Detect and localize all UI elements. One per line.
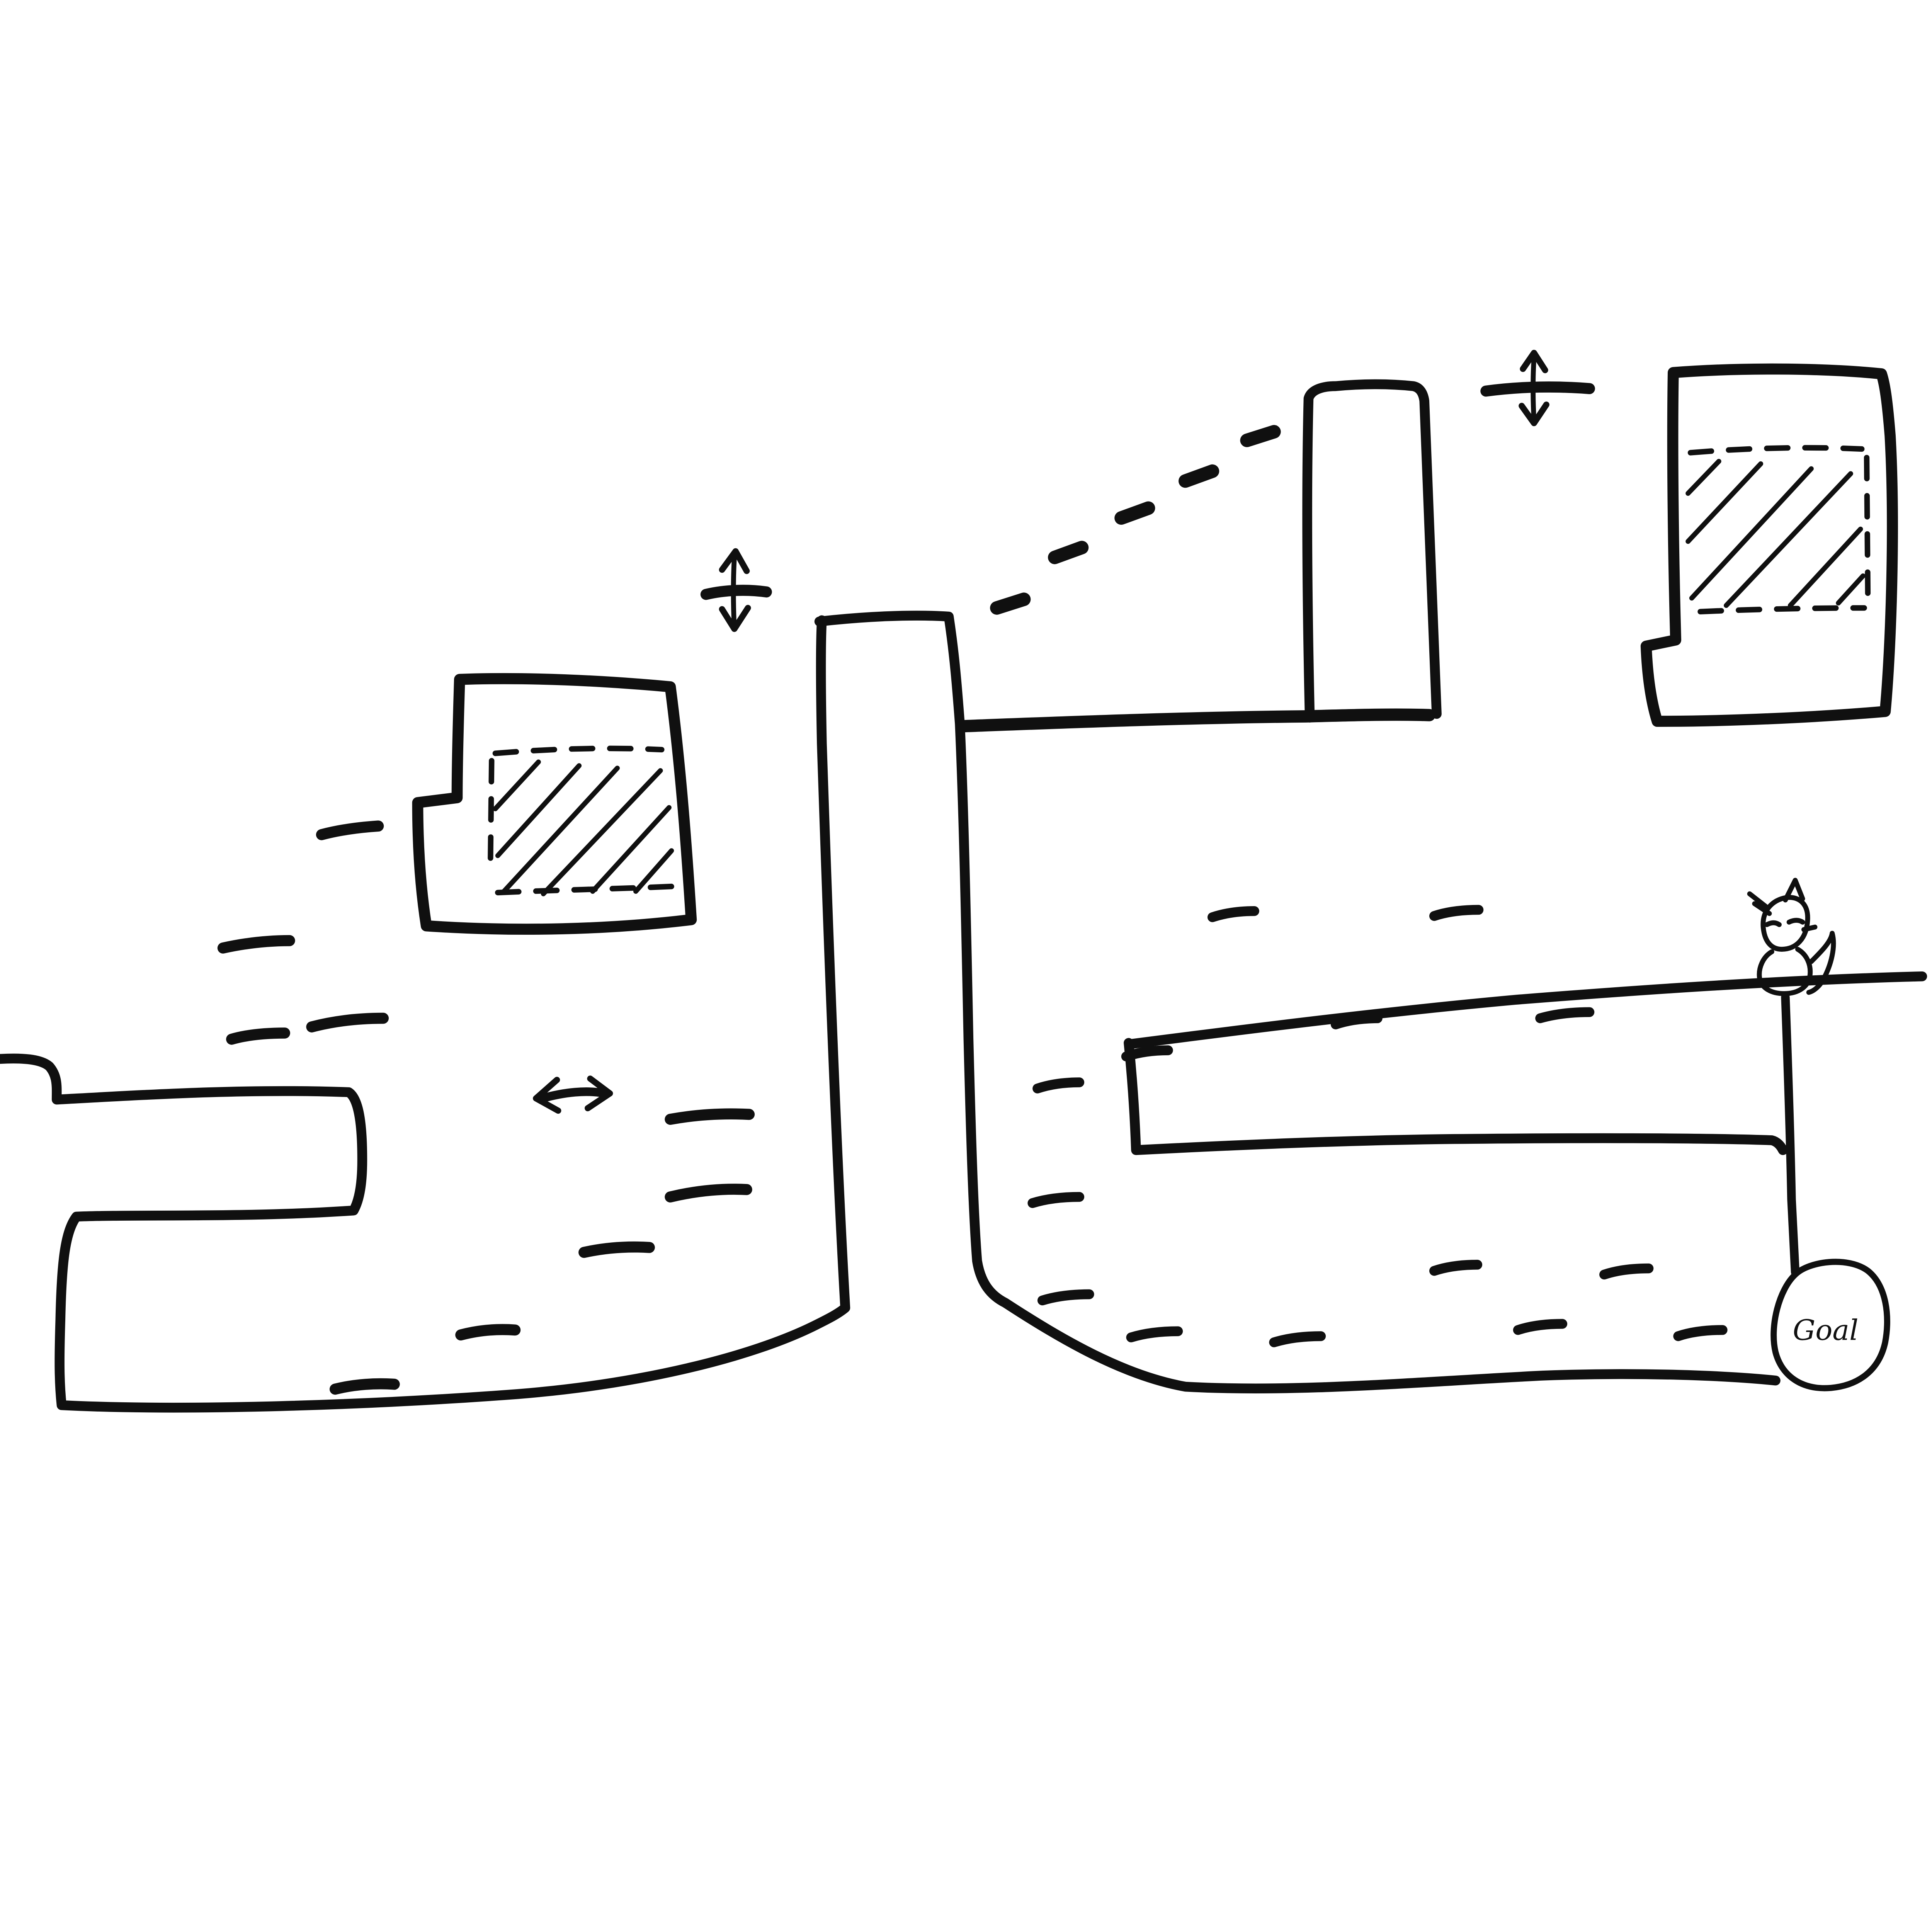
texture-dash [1434,910,1479,916]
hatch-lines [495,762,672,894]
moving-platform-bar [706,590,766,595]
texture-dash [584,1247,649,1252]
dashed-edge-bottom [498,886,673,893]
texture-dash [1434,1265,1478,1271]
texture-dash [1604,1268,1649,1274]
staircase-dashes [223,826,383,1039]
texture-dash [321,826,378,835]
trail-dash [1121,508,1148,518]
dashed-jump-trail [997,432,1274,608]
texture-dash [223,941,289,948]
texture-dash [461,1330,515,1335]
trail-dash [1185,471,1213,481]
terrain-left [0,620,845,1408]
texture-dash [1131,1331,1178,1337]
cat-eye-left [1767,923,1779,925]
goal-marker: Goal [1774,1262,1887,1388]
texture-dash [670,1114,749,1119]
left-ledge-and-ground-outline [0,620,845,1408]
hatched-block-right [1646,369,1892,721]
dashed-edge-right [1867,458,1868,606]
vertical-move-glyph-right [1486,353,1590,423]
cat-body [1759,949,1810,994]
texture-dash [1043,1294,1089,1300]
dashed-inner-square [1690,448,1868,612]
upper-right-bar-outline [1307,384,1437,718]
texture-dash [335,1384,394,1389]
hatch-lines [1688,461,1863,606]
texture-dash [1540,1012,1590,1018]
dashed-inner-square [490,748,673,893]
goal-label: Goal [1793,1314,1859,1347]
hatch-line [1790,529,1861,606]
texture-dash [1032,1197,1079,1203]
hatch-line [498,765,579,856]
dashed-edge-top [495,748,662,754]
hatch-line [593,808,669,891]
hatch-line [1688,461,1719,493]
dashed-edge-top [1690,448,1862,453]
cat-eye-right [1789,920,1803,922]
moving-platform-bar [1486,387,1590,391]
texture-dash [231,1033,284,1039]
trail-dash [1247,432,1274,440]
vertical-move-glyph-left [706,551,766,629]
texture-dash [1037,1082,1079,1089]
horizontal-arrow-shaft [542,1092,605,1098]
vertical-arrow-shaft [1533,358,1534,421]
level-sketch-canvas: Goal [0,0,1932,1917]
texture-dash [1678,1330,1723,1336]
sketch-page: Goal [0,0,1932,1917]
pillar-arm-top [962,714,1429,726]
floor-dashes-left [335,1114,749,1389]
inner-notch [1129,1043,1783,1150]
cat-whisker [1804,927,1815,929]
texture-dash [312,1018,383,1027]
right-edge-drop [1786,997,1796,1272]
texture-dash [1126,1050,1168,1056]
hatch-line [1838,576,1863,603]
hatch-line [495,762,539,809]
texture-dash [1336,1018,1378,1024]
dashed-edge-left [490,761,492,867]
dashed-edge-bottom [1701,608,1864,612]
trail-dash [997,599,1024,608]
upper-right-bar [1307,384,1437,718]
trail-dash [1055,548,1082,558]
texture-dash [670,1189,747,1197]
hatched-block-outline [1646,369,1892,721]
texture-dash [1274,1336,1321,1342]
hatched-block-left [418,679,691,929]
texture-dash [1213,911,1254,917]
hatch-line [1688,464,1761,541]
horizontal-move-arrow [536,1078,610,1111]
texture-dash [1518,1324,1563,1330]
vertical-arrow-shaft [733,558,734,629]
